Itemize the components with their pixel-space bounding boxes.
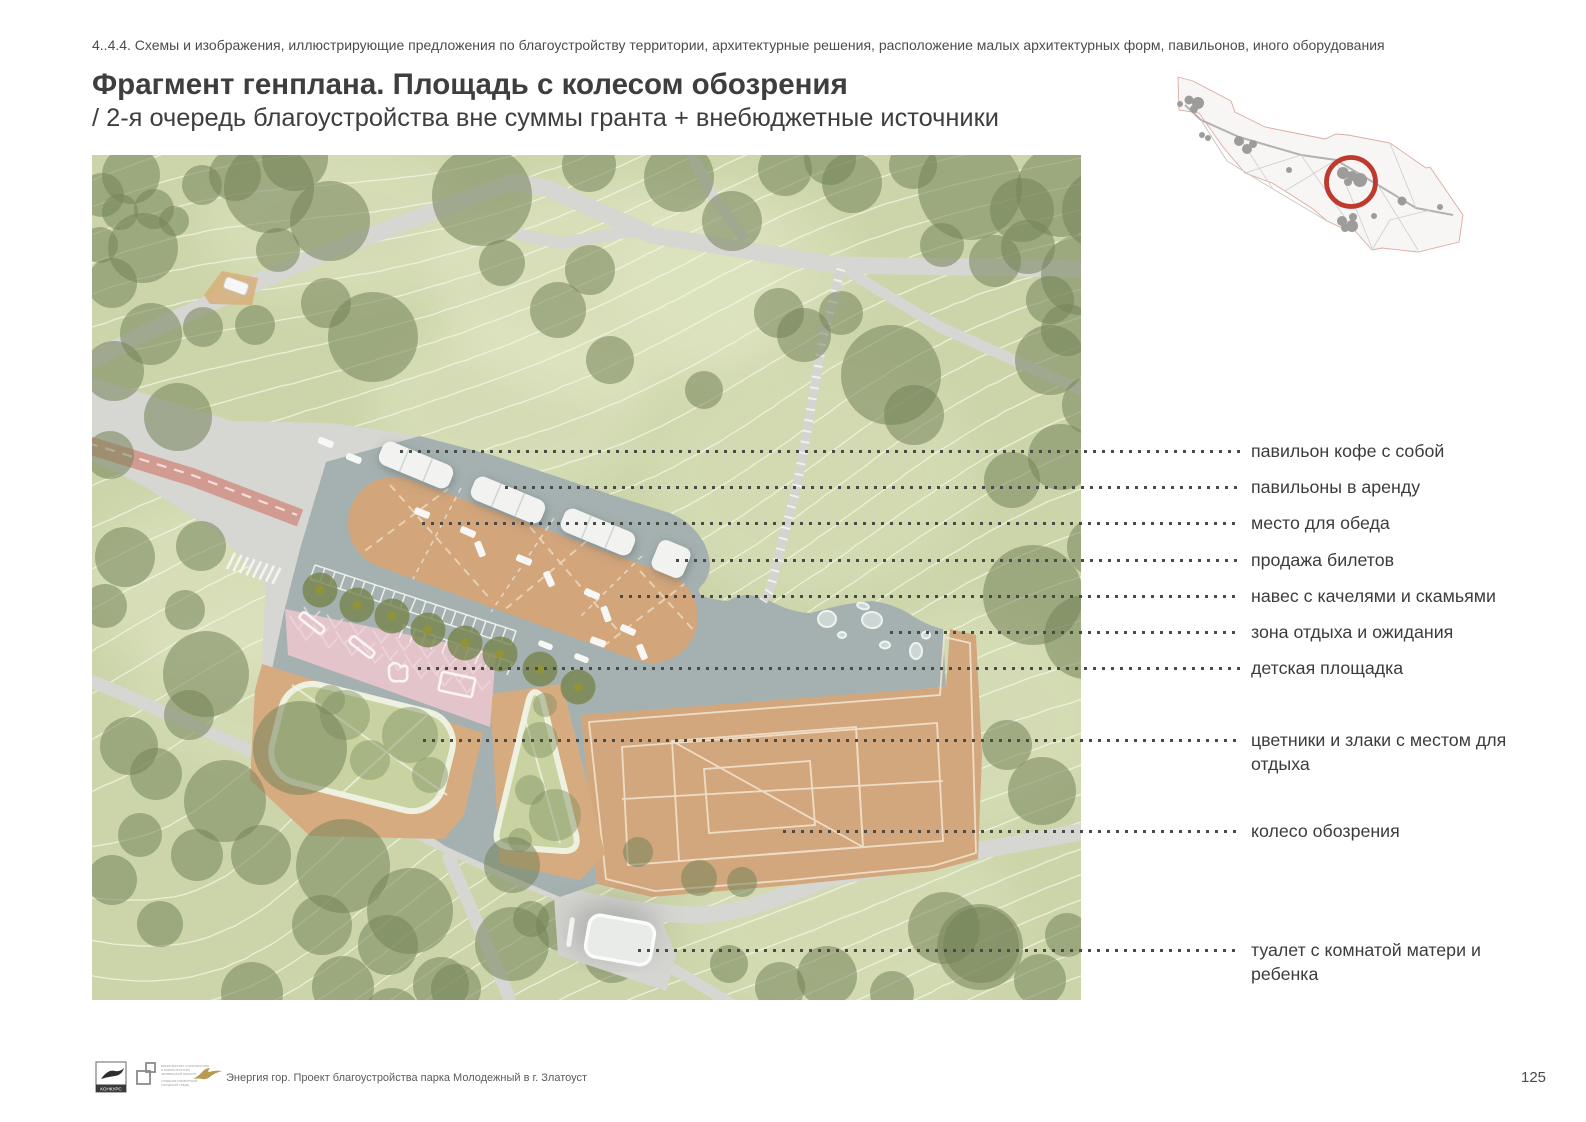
svg-text:ЧЕЛЯБИНСКОЙ ОБЛАСТИ: ЧЕЛЯБИНСКОЙ ОБЛАСТИ (161, 1072, 196, 1076)
svg-text:КОНКУРС: КОНКУРС (100, 1087, 122, 1092)
svg-text:ГОРОДСКОЙ СРЕДЫ: ГОРОДСКОЙ СРЕДЫ (161, 1083, 190, 1087)
